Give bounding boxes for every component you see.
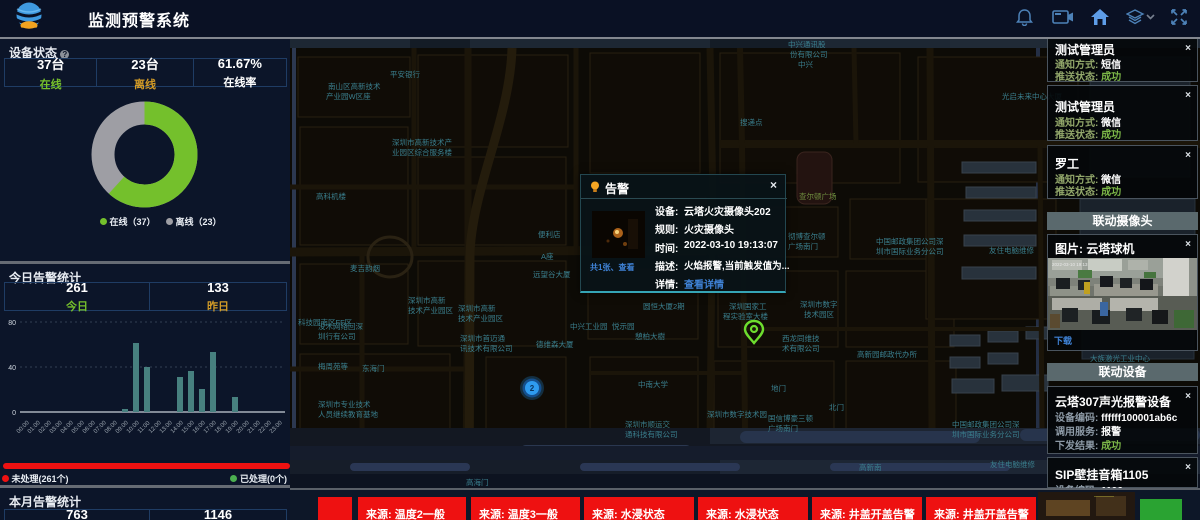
svg-text:远望谷大厦: 远望谷大厦	[533, 269, 571, 279]
svg-text:梅周苑等: 梅周苑等	[318, 361, 348, 371]
svg-text:中国邮政集团公司深: 中国邮政集团公司深	[876, 236, 944, 246]
svg-text:2: 2	[530, 384, 535, 393]
svg-text:23:00: 23:00	[269, 420, 284, 435]
svg-text:地门: 地门	[771, 383, 786, 393]
svg-text:80: 80	[8, 320, 16, 327]
svg-text:深圳市顺运交: 深圳市顺运交	[625, 419, 670, 429]
svg-text:深圳市数字技术园: 深圳市数字技术园	[707, 409, 767, 419]
svg-text:人员继续教育基地: 人员继续教育基地	[318, 409, 378, 419]
svg-text:南山区高新技术: 南山区高新技术	[328, 81, 381, 91]
svg-text:深圳市高新: 深圳市高新	[458, 303, 496, 313]
svg-text:深圳市高新技术产: 深圳市高新技术产	[392, 137, 452, 147]
svg-text:业园区综合服务楼: 业园区综合服务楼	[392, 147, 452, 157]
svg-text:中国邮政集团公司深: 中国邮政集团公司深	[952, 419, 1020, 429]
svg-text:憩柏大樹: 憩柏大樹	[635, 331, 665, 341]
svg-text:广场南门: 广场南门	[788, 241, 818, 251]
svg-text:西龙同维技: 西龙同维技	[782, 333, 820, 343]
svg-text:术有限公司: 术有限公司	[782, 343, 820, 353]
svg-text:便利店: 便利店	[538, 229, 561, 239]
svg-text:技术产业园区: 技术产业园区	[458, 313, 503, 323]
svg-text:平安银行: 平安银行	[390, 69, 420, 79]
svg-text:中兴通讯股: 中兴通讯股	[788, 39, 826, 49]
svg-text:友住电脑维修: 友住电脑维修	[989, 245, 1034, 255]
svg-text:深圳国家工: 深圳国家工	[729, 301, 767, 311]
svg-text:圆恒大厦2期: 圆恒大厦2期	[643, 301, 685, 311]
svg-text:技术园区: 技术园区	[804, 309, 834, 319]
svg-text:搜递点: 搜递点	[740, 117, 763, 127]
svg-text:40: 40	[8, 365, 16, 372]
svg-text:0: 0	[12, 410, 16, 417]
svg-text:产业园W区座: 产业园W区座	[326, 91, 371, 101]
svg-text:查尔顿广场: 查尔顿广场	[799, 191, 837, 201]
svg-text:高新园邮政代办所: 高新园邮政代办所	[857, 349, 917, 359]
svg-text:中兴工业园: 中兴工业园	[570, 321, 608, 331]
svg-text:悦示园: 悦示园	[612, 321, 635, 331]
svg-text:通科技有限公司: 通科技有限公司	[625, 429, 678, 439]
svg-text:深圳市专业技术: 深圳市专业技术	[318, 399, 371, 409]
svg-text:麦吉韵烟: 麦吉韵烟	[350, 263, 380, 273]
svg-text:友住电脑维修: 友住电脑维修	[990, 459, 1035, 469]
svg-text:高科机楼: 高科机楼	[316, 191, 346, 201]
svg-text:北门: 北门	[829, 403, 844, 412]
svg-text:高新南: 高新南	[859, 462, 882, 472]
svg-text:国信博豪三顿: 国信博豪三顿	[768, 413, 813, 423]
svg-text:深圳市数字: 深圳市数字	[800, 299, 838, 309]
svg-text:大族激光工业中心: 大族激光工业中心	[1090, 353, 1150, 363]
svg-text:技术产业园区: 技术产业园区	[408, 305, 453, 315]
svg-text:德维森大厦: 德维森大厦	[536, 339, 574, 349]
svg-text:圳行有公司: 圳行有公司	[318, 331, 356, 341]
svg-text:中南大学: 中南大学	[638, 379, 668, 389]
svg-text:程实验室大楼: 程实验室大楼	[723, 311, 768, 321]
svg-text:A座: A座	[541, 251, 554, 261]
svg-text:份有限公司: 份有限公司	[790, 49, 828, 59]
svg-text:东海门: 东海门	[362, 363, 385, 373]
svg-text:深圳市高新: 深圳市高新	[408, 295, 446, 305]
svg-text:广场南门: 广场南门	[768, 423, 798, 433]
svg-text:高海门: 高海门	[466, 477, 489, 487]
svg-text:圳市国际业务分公司: 圳市国际业务分公司	[952, 429, 1020, 439]
svg-text:圳市国际业务分公司: 圳市国际业务分公司	[876, 246, 944, 256]
svg-text:彻博查尔顿: 彻博查尔顿	[788, 231, 826, 241]
svg-text:讯技术有限公司: 讯技术有限公司	[460, 343, 513, 353]
svg-text:深圳市首迈通: 深圳市首迈通	[460, 333, 505, 343]
svg-text:中兴: 中兴	[798, 59, 813, 69]
svg-text:没木网络回深: 没木网络回深	[318, 321, 363, 331]
svg-text:2022-03-10 19:13: 2022-03-10 19:13	[1052, 262, 1088, 267]
